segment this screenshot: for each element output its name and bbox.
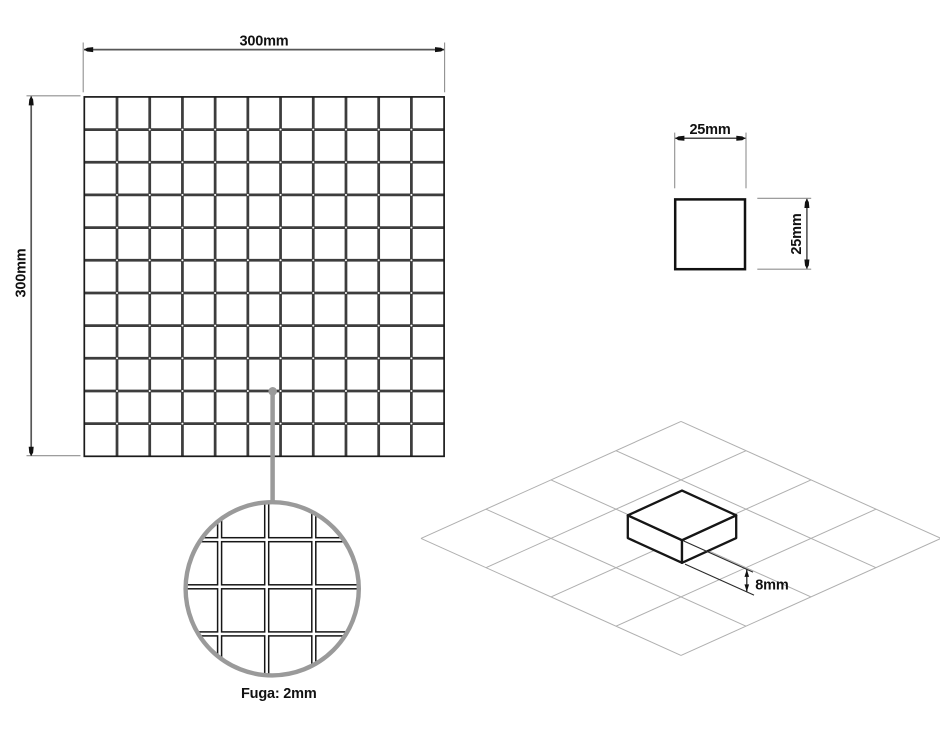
svg-text:25mm: 25mm (689, 122, 730, 138)
svg-text:8mm: 8mm (755, 577, 788, 593)
svg-text:Fuga: 2mm: Fuga: 2mm (241, 686, 317, 702)
svg-text:25mm: 25mm (789, 213, 805, 254)
svg-text:300mm: 300mm (240, 34, 289, 50)
svg-text:300mm: 300mm (14, 249, 30, 298)
